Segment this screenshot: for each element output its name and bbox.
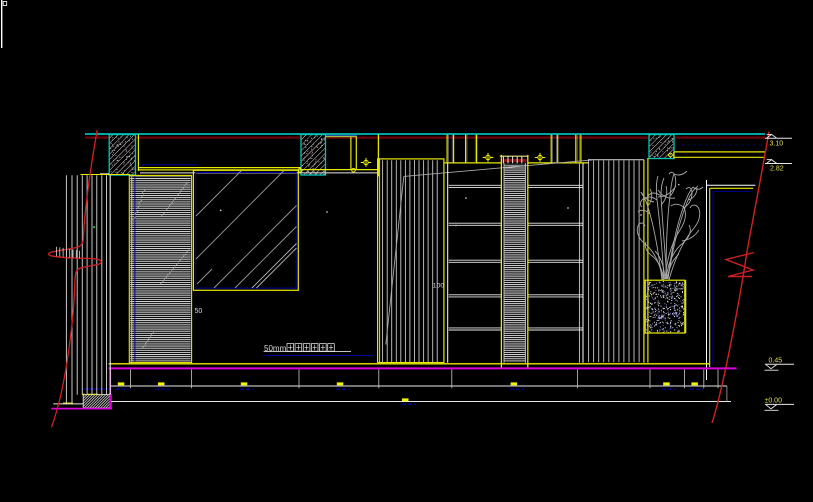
svg-text:±0.00: ±0.00 — [765, 397, 783, 404]
svg-text:3.10: 3.10 — [770, 140, 784, 147]
svg-text:100: 100 — [433, 282, 445, 289]
svg-text:2.82: 2.82 — [770, 166, 784, 173]
svg-text:0.45: 0.45 — [769, 357, 783, 364]
svg-text:50: 50 — [195, 308, 203, 315]
